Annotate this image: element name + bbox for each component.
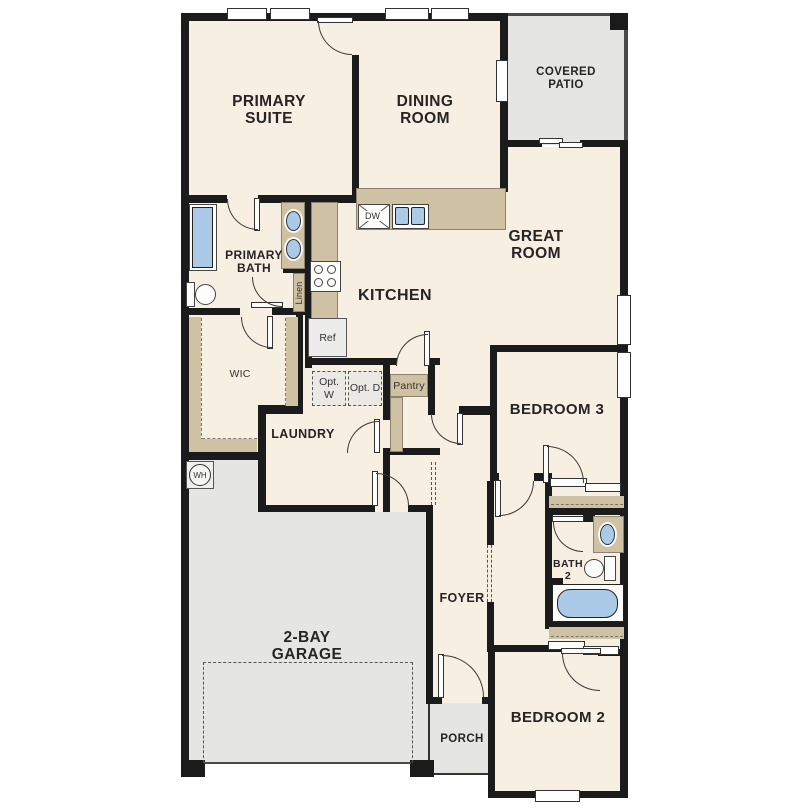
room-label-wic: WIC xyxy=(222,367,258,383)
closet-bypass-door xyxy=(585,483,621,492)
covered-patio-text: COVERED PATIO xyxy=(526,66,606,92)
window xyxy=(431,8,469,20)
wall xyxy=(620,145,628,298)
wall xyxy=(487,481,494,545)
optional-dryer: Opt. D xyxy=(348,371,382,406)
linen-text: Linen xyxy=(294,281,304,304)
garage-clearance-outline xyxy=(203,662,413,763)
floor-plan: DW Ref Linen Opt. W Opt. D Pantry WH xyxy=(0,0,810,810)
wall xyxy=(482,697,495,704)
closet-dash xyxy=(551,504,623,505)
kitchen-text: KITCHEN xyxy=(358,287,432,305)
refrigerator: Ref xyxy=(308,318,347,357)
refrigerator-label: Ref xyxy=(319,332,335,344)
bedroom2-text: BEDROOM 2 xyxy=(511,710,605,727)
garage-text: 2-BAY GARAGE xyxy=(247,629,367,664)
wh-text: WH xyxy=(193,471,206,480)
kitchen-sink-basin xyxy=(395,207,409,225)
window xyxy=(617,295,631,345)
water-heater: WH xyxy=(189,464,211,486)
pantry-shelf-bar: Pantry xyxy=(390,374,428,397)
bath2-sink xyxy=(600,524,615,545)
wall xyxy=(408,505,433,512)
porch-text: PORCH xyxy=(440,733,484,746)
room-label-garage: 2-BAY GARAGE xyxy=(247,622,367,670)
wic-text: WIC xyxy=(229,369,250,381)
wall xyxy=(181,452,266,460)
toilet-tank xyxy=(186,282,195,307)
patio-slider-door xyxy=(559,142,583,148)
closet-dash xyxy=(551,636,623,637)
window xyxy=(496,60,508,102)
burner-icon xyxy=(314,278,323,287)
great-room-text: GREAT ROOM xyxy=(491,228,581,263)
laundry-text: LAUNDRY xyxy=(271,427,334,441)
patio-post xyxy=(610,13,628,30)
room-label-laundry: LAUNDRY xyxy=(260,425,346,443)
toilet-tank xyxy=(604,556,616,581)
wall xyxy=(181,308,240,315)
dining-room-text: DINING ROOM xyxy=(380,93,470,128)
wall xyxy=(428,358,435,415)
room-label-covered-patio: COVERED PATIO xyxy=(526,60,606,98)
primary-bath-text: PRIMARY BATH xyxy=(214,249,294,276)
pantry-shelf-strip xyxy=(390,397,403,452)
room-label-primary-bath: PRIMARY BATH xyxy=(214,243,294,281)
wall xyxy=(488,791,535,798)
wall xyxy=(490,345,628,352)
room-label-bedroom3: BEDROOM 3 xyxy=(496,400,618,420)
patio-wall xyxy=(624,13,628,145)
room-label-primary-suite: PRIMARY SUITE xyxy=(209,85,329,135)
primary-suite-text: PRIMARY SUITE xyxy=(209,93,329,128)
room-label-bedroom2: BEDROOM 2 xyxy=(497,708,619,728)
room-label-porch: PORCH xyxy=(434,731,490,748)
bedroom3-text: BEDROOM 3 xyxy=(510,402,604,419)
kitchen-sink-basin xyxy=(411,207,425,225)
bathtub xyxy=(557,589,618,618)
pantry-label: Pantry xyxy=(393,380,425,392)
wall xyxy=(580,791,628,798)
shower xyxy=(192,207,213,268)
wall xyxy=(383,365,390,420)
burner-icon xyxy=(327,265,336,274)
room-label-kitchen: KITCHEN xyxy=(354,286,436,306)
wall xyxy=(305,358,397,365)
wall xyxy=(500,140,542,147)
wall xyxy=(545,508,628,515)
opt-w-text: Opt. W xyxy=(313,376,345,400)
wall xyxy=(410,760,434,777)
linen-label: Linen xyxy=(283,277,315,309)
burner-icon xyxy=(327,278,336,287)
bath2-text: BATH 2 xyxy=(549,559,587,583)
wall xyxy=(258,405,266,512)
burner-icon xyxy=(314,265,323,274)
opt-d-text: Opt. D xyxy=(350,382,380,394)
wall xyxy=(181,195,227,203)
window xyxy=(227,8,267,20)
window xyxy=(385,8,429,20)
room-label-dining-room: DINING ROOM xyxy=(380,85,470,135)
optional-washer: Opt. W xyxy=(312,371,346,406)
wall xyxy=(272,308,311,315)
wic-shelf-dash xyxy=(201,318,202,451)
opening-marker xyxy=(431,462,436,505)
window xyxy=(270,8,310,20)
room-label-bath2: BATH 2 xyxy=(549,556,587,586)
wic-shelf xyxy=(189,317,201,452)
wic-shelf xyxy=(286,317,298,406)
wall xyxy=(181,13,189,777)
room-label-foyer: FOYER xyxy=(434,589,490,606)
vanity-sink xyxy=(286,211,301,231)
toilet-bowl xyxy=(584,559,604,578)
wall xyxy=(580,140,628,147)
wall xyxy=(352,55,359,202)
bedroom2-closet-shelf xyxy=(549,627,624,639)
bedroom3-closet-shelf xyxy=(549,496,624,508)
wall xyxy=(181,760,205,777)
toilet-bowl xyxy=(195,284,216,305)
foyer-text: FOYER xyxy=(439,591,484,605)
wall xyxy=(488,645,495,798)
wall xyxy=(426,697,442,704)
dishwasher-label: DW xyxy=(363,211,382,221)
wall xyxy=(426,512,433,703)
wic-shelf xyxy=(189,439,257,452)
room-label-great-room: GREAT ROOM xyxy=(491,222,581,268)
wall xyxy=(258,505,375,512)
dishwasher: DW xyxy=(358,204,390,229)
window xyxy=(535,790,580,802)
window xyxy=(617,352,631,398)
wall xyxy=(500,13,508,62)
